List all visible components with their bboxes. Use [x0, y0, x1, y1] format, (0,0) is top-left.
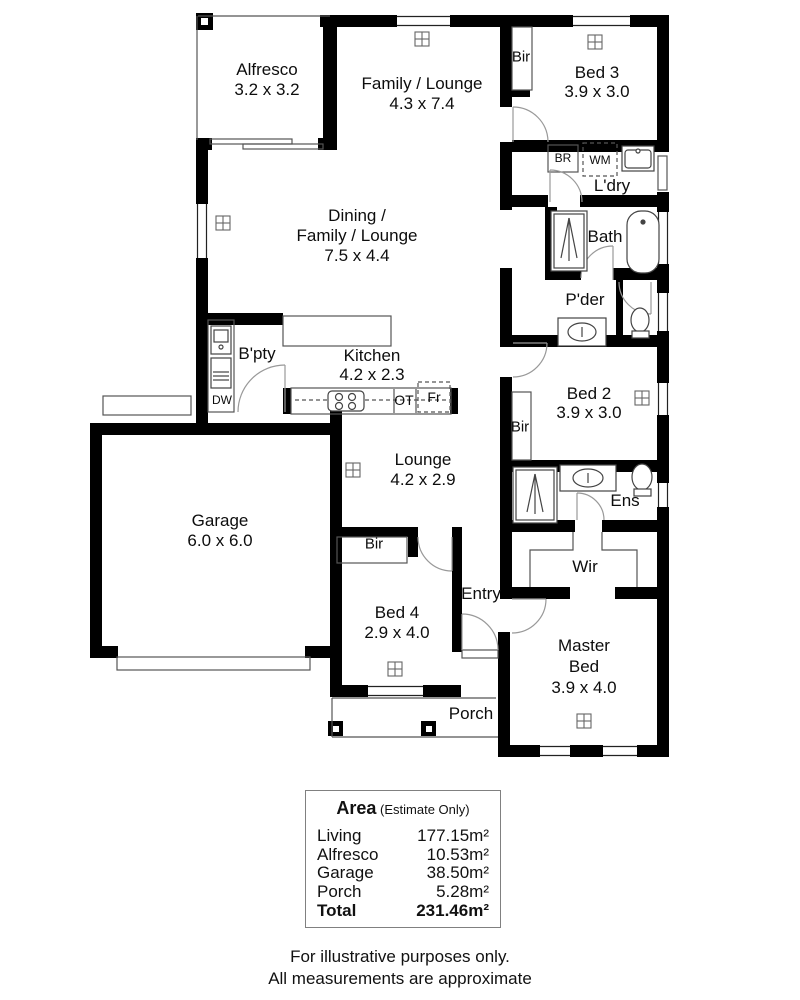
area-row-living: Living 177.15m²	[317, 827, 489, 846]
closet-label-bir-bed2: Bir	[511, 419, 529, 436]
area-row-porch: Porch 5.28m²	[317, 883, 489, 902]
area-subtitle-text: (Estimate Only)	[380, 802, 470, 817]
closet-label-bir-bed4: Bir	[365, 536, 383, 553]
room-dims-bed3: 3.9 x 3.0	[564, 82, 629, 102]
area-total-label: Total	[317, 902, 356, 921]
pane-symbol-lounge	[346, 463, 360, 477]
area-row-value: 10.53m²	[427, 846, 489, 865]
room-label-master-2: Bed	[569, 657, 599, 677]
room-dims-dining: 7.5 x 4.4	[324, 246, 389, 266]
fixture-label-br: BR	[555, 151, 572, 165]
pane-symbol-dining	[216, 216, 230, 230]
room-label-alfresco: Alfresco	[236, 60, 297, 80]
room-label-lounge: Lounge	[395, 450, 452, 470]
disclaimer-line-1: For illustrative purposes only.	[0, 946, 800, 968]
area-row-total: Total 231.46m²	[317, 902, 489, 921]
closet-label-bir-top: Bir	[512, 49, 530, 66]
pane-symbol-bed2	[635, 391, 649, 405]
fixture-label-fr: Fr	[427, 389, 440, 405]
disclaimer: For illustrative purposes only. All meas…	[0, 946, 800, 990]
area-title-text: Area	[336, 798, 376, 818]
fixture-label-dw: DW	[212, 393, 232, 407]
area-row-alfresco: Alfresco 10.53m²	[317, 846, 489, 865]
room-label-bed3: Bed 3	[575, 63, 619, 83]
dishwasher-icon	[211, 358, 231, 388]
room-label-bpty: B'pty	[238, 344, 275, 364]
pane-symbol-family	[415, 32, 429, 46]
area-row-garage: Garage 38.50m²	[317, 864, 489, 883]
ceiling-symbols	[216, 32, 649, 728]
fixture-label-wm: WM	[589, 153, 610, 167]
pane-symbol-master	[577, 714, 591, 728]
area-table: Area (Estimate Only) Living 177.15m² Alf…	[305, 790, 501, 928]
room-label-kitchen: Kitchen	[344, 346, 401, 366]
ens-shower-icon	[513, 467, 557, 523]
room-label-bed4: Bed 4	[375, 603, 419, 623]
pane-symbol-bed3	[588, 35, 602, 49]
room-dims-lounge: 4.2 x 2.9	[390, 470, 455, 490]
ens-vanity-icon	[560, 465, 616, 491]
fixture-label-ot: OT	[394, 392, 413, 408]
area-table-title: Area (Estimate Only)	[317, 798, 489, 819]
room-label-porch: Porch	[449, 704, 493, 724]
area-row-value: 5.28m²	[436, 883, 489, 902]
room-dims-master: 3.9 x 4.0	[551, 678, 616, 698]
room-label-bed2: Bed 2	[567, 384, 611, 404]
pantry-sink-icon	[211, 326, 231, 354]
area-row-value: 38.50m²	[427, 864, 489, 883]
room-label-dining-1: Dining /	[328, 206, 386, 226]
floor-plan-drawing	[0, 0, 800, 770]
pane-symbol-bed4	[388, 662, 402, 676]
room-label-pder: P'der	[565, 290, 604, 310]
room-label-garage: Garage	[192, 511, 249, 531]
room-dims-family-lounge: 4.3 x 7.4	[389, 94, 454, 114]
room-label-ens: Ens	[610, 491, 639, 511]
area-row-name: Garage	[317, 864, 374, 883]
room-label-ldry: L'dry	[594, 176, 630, 196]
room-label-bath: Bath	[588, 227, 623, 247]
room-dims-bed2: 3.9 x 3.0	[556, 403, 621, 423]
room-label-entry: Entry	[461, 584, 501, 604]
room-dims-bed4: 2.9 x 4.0	[364, 623, 429, 643]
room-label-master-1: Master	[558, 636, 610, 656]
area-row-name: Porch	[317, 883, 361, 902]
laundry-tub-icon	[622, 146, 654, 171]
room-label-dining-2: Family / Lounge	[297, 226, 418, 246]
bathtub-icon	[627, 211, 659, 273]
cooktop-icon	[328, 391, 364, 411]
bath-shower-icon	[551, 211, 587, 271]
area-row-name: Alfresco	[317, 846, 378, 865]
area-row-value: 177.15m²	[417, 827, 489, 846]
room-label-family-lounge: Family / Lounge	[362, 74, 483, 94]
powder-toilet-icon	[631, 308, 649, 338]
area-row-name: Living	[317, 827, 361, 846]
powder-vanity-icon	[558, 318, 606, 346]
room-dims-garage: 6.0 x 6.0	[187, 531, 252, 551]
area-total-value: 231.46m²	[416, 902, 489, 921]
room-dims-kitchen: 4.2 x 2.3	[339, 365, 404, 385]
disclaimer-line-2: All measurements are approximate	[0, 968, 800, 990]
room-label-wir: Wir	[572, 557, 597, 577]
floor-plan-page: Alfresco 3.2 x 3.2 Family / Lounge 4.3 x…	[0, 0, 800, 1000]
room-dims-alfresco: 3.2 x 3.2	[234, 80, 299, 100]
